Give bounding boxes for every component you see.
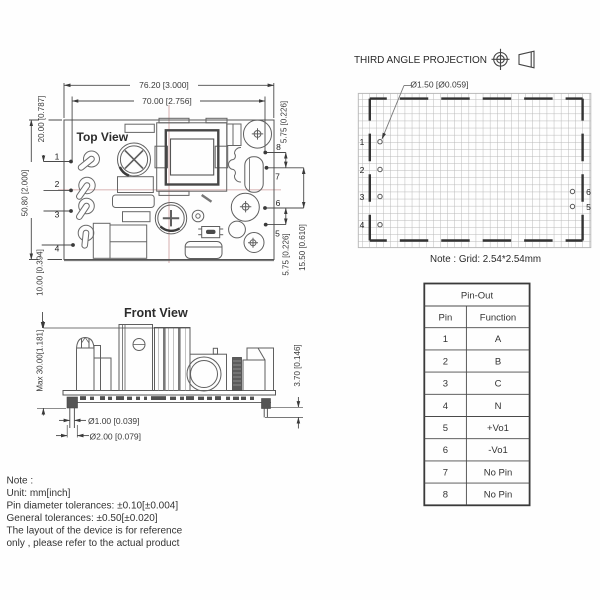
svg-text:5.75 [0.226]: 5.75 [0.226]: [280, 101, 289, 143]
svg-text:15.50 [0.610]: 15.50 [0.610]: [298, 224, 307, 271]
svg-text:Note : Grid: 2.54*2.54mm: Note : Grid: 2.54*2.54mm: [430, 254, 541, 265]
svg-text:3: 3: [360, 192, 365, 202]
svg-text:7: 7: [443, 467, 448, 478]
svg-text:only , please refer to the act: only , please refer to the actual produc…: [7, 538, 180, 549]
svg-text:2: 2: [360, 165, 365, 175]
svg-text:A: A: [495, 334, 502, 345]
svg-text:The layout of the device is fo: The layout of the device is for referenc…: [7, 526, 183, 537]
svg-text:No Pin: No Pin: [484, 467, 513, 478]
svg-text:Pin diameter tolerances: ±0.10: Pin diameter tolerances: ±0.10[±0.004]: [7, 501, 179, 512]
svg-text:50.80 [2.000]: 50.80 [2.000]: [21, 170, 30, 217]
svg-text:Function: Function: [480, 313, 516, 324]
svg-text:1: 1: [443, 334, 448, 345]
svg-text:8: 8: [443, 490, 448, 501]
svg-text:5.75 [0.226]: 5.75 [0.226]: [282, 233, 291, 275]
svg-text:General tolerances: ±0.50[±0.0: General tolerances: ±0.50[±0.020]: [7, 513, 158, 524]
svg-text:2: 2: [443, 356, 448, 367]
svg-text:Ø1.50 [Ø0.059]: Ø1.50 [Ø0.059]: [410, 79, 468, 89]
svg-text:10.00 [0.394]: 10.00 [0.394]: [36, 249, 45, 296]
svg-text:2: 2: [55, 179, 60, 189]
svg-text:Pin: Pin: [439, 313, 453, 324]
svg-text:6: 6: [586, 187, 591, 197]
svg-text:Note :: Note :: [7, 476, 34, 487]
svg-text:THIRD ANGLE PROJECTION: THIRD ANGLE PROJECTION: [354, 55, 487, 66]
svg-text:3: 3: [443, 379, 448, 390]
svg-text:1: 1: [55, 152, 60, 162]
svg-text:3: 3: [55, 210, 60, 220]
svg-text:5: 5: [586, 202, 591, 212]
svg-text:4: 4: [55, 244, 60, 254]
svg-text:1: 1: [360, 137, 365, 147]
svg-text:Front View: Front View: [124, 306, 188, 320]
svg-text:3.70 [0.146]: 3.70 [0.146]: [293, 344, 302, 386]
svg-text:4: 4: [443, 401, 448, 412]
svg-text:5: 5: [443, 423, 448, 434]
svg-text:Max 30.00[1.181]: Max 30.00[1.181]: [36, 330, 45, 392]
svg-text:76.20 [3.000]: 76.20 [3.000]: [139, 80, 189, 90]
svg-text:20.00 [0.787]: 20.00 [0.787]: [37, 96, 46, 143]
svg-text:4: 4: [360, 220, 365, 230]
svg-text:+Vo1: +Vo1: [487, 423, 509, 434]
svg-text:B: B: [495, 356, 501, 367]
svg-text:Ø1.00 [0.039]: Ø1.00 [0.039]: [88, 416, 140, 426]
svg-text:Top View: Top View: [77, 130, 129, 144]
svg-text:6: 6: [443, 445, 448, 456]
svg-text:7: 7: [275, 172, 280, 182]
svg-text:-Vo1: -Vo1: [488, 445, 508, 456]
svg-text:5: 5: [275, 229, 280, 239]
svg-text:No Pin: No Pin: [484, 490, 513, 501]
svg-text:C: C: [495, 379, 502, 390]
svg-text:Ø2.00 [0.079]: Ø2.00 [0.079]: [90, 431, 142, 441]
svg-text:Unit: mm[inch]: Unit: mm[inch]: [7, 488, 71, 499]
svg-text:N: N: [495, 401, 502, 412]
svg-text:70.00 [2.756]: 70.00 [2.756]: [142, 96, 192, 106]
svg-text:Pin-Out: Pin-Out: [461, 290, 494, 301]
svg-text:6: 6: [276, 198, 281, 208]
